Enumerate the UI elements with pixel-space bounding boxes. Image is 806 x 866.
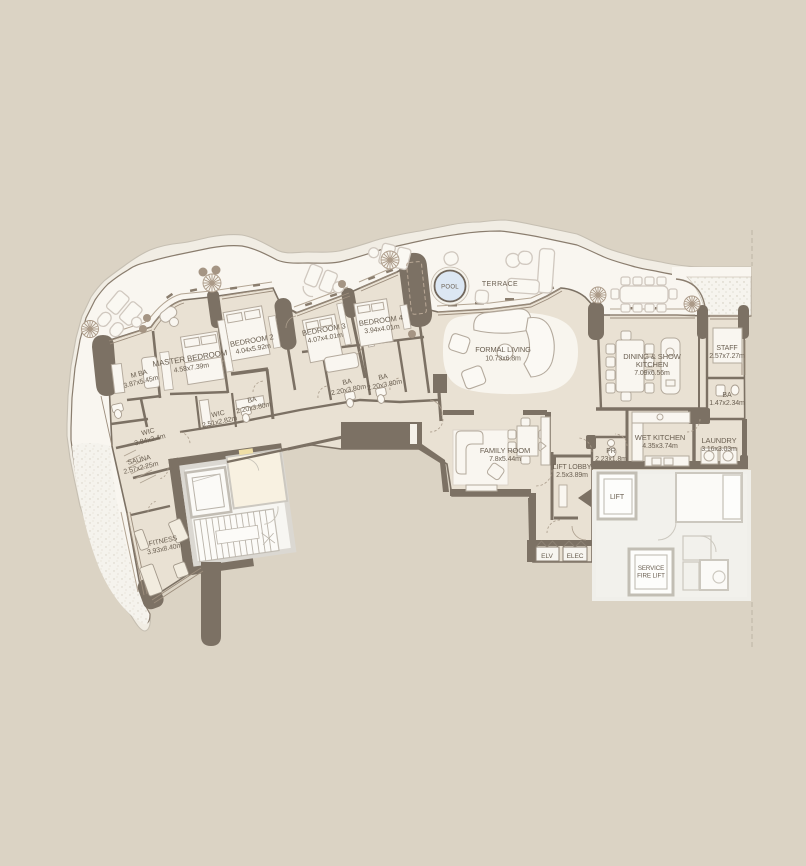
svg-text:2.57x7.27m: 2.57x7.27m xyxy=(709,353,745,360)
svg-text:7.09x6.56m: 7.09x6.56m xyxy=(634,370,670,377)
svg-text:FORMAL LIVING: FORMAL LIVING xyxy=(475,345,531,354)
svg-text:PR: PR xyxy=(606,448,616,455)
svg-text:POOL: POOL xyxy=(441,285,459,291)
svg-text:FAMILY ROOM: FAMILY ROOM xyxy=(480,446,530,455)
svg-text:3.16x3.03m: 3.16x3.03m xyxy=(701,446,737,453)
svg-text:LIFT LOBBY: LIFT LOBBY xyxy=(553,464,592,471)
svg-text:1.47x2.34m: 1.47x2.34m xyxy=(709,400,745,407)
svg-text:FIRE LIFT: FIRE LIFT xyxy=(637,573,665,580)
svg-text:ELEC: ELEC xyxy=(567,553,584,560)
svg-text:2.5x3.89m: 2.5x3.89m xyxy=(556,472,588,479)
svg-text:2.23x1.8m: 2.23x1.8m xyxy=(595,456,627,463)
svg-text:KITCHEN: KITCHEN xyxy=(636,360,668,369)
svg-text:BA: BA xyxy=(722,392,732,399)
svg-text:SERVICE: SERVICE xyxy=(638,565,664,572)
svg-text:ELV: ELV xyxy=(541,553,553,560)
svg-text:7.8x5.44m: 7.8x5.44m xyxy=(489,456,521,463)
svg-text:WET KITCHEN: WET KITCHEN xyxy=(635,433,685,442)
svg-text:LIFT: LIFT xyxy=(610,494,625,501)
svg-text:TERRACE: TERRACE xyxy=(482,281,518,288)
svg-text:STAFF: STAFF xyxy=(716,345,737,352)
svg-text:LAUNDRY: LAUNDRY xyxy=(701,436,736,445)
svg-text:10.73x6.8m: 10.73x6.8m xyxy=(485,356,521,363)
svg-text:4.35x3.74m: 4.35x3.74m xyxy=(642,443,678,450)
